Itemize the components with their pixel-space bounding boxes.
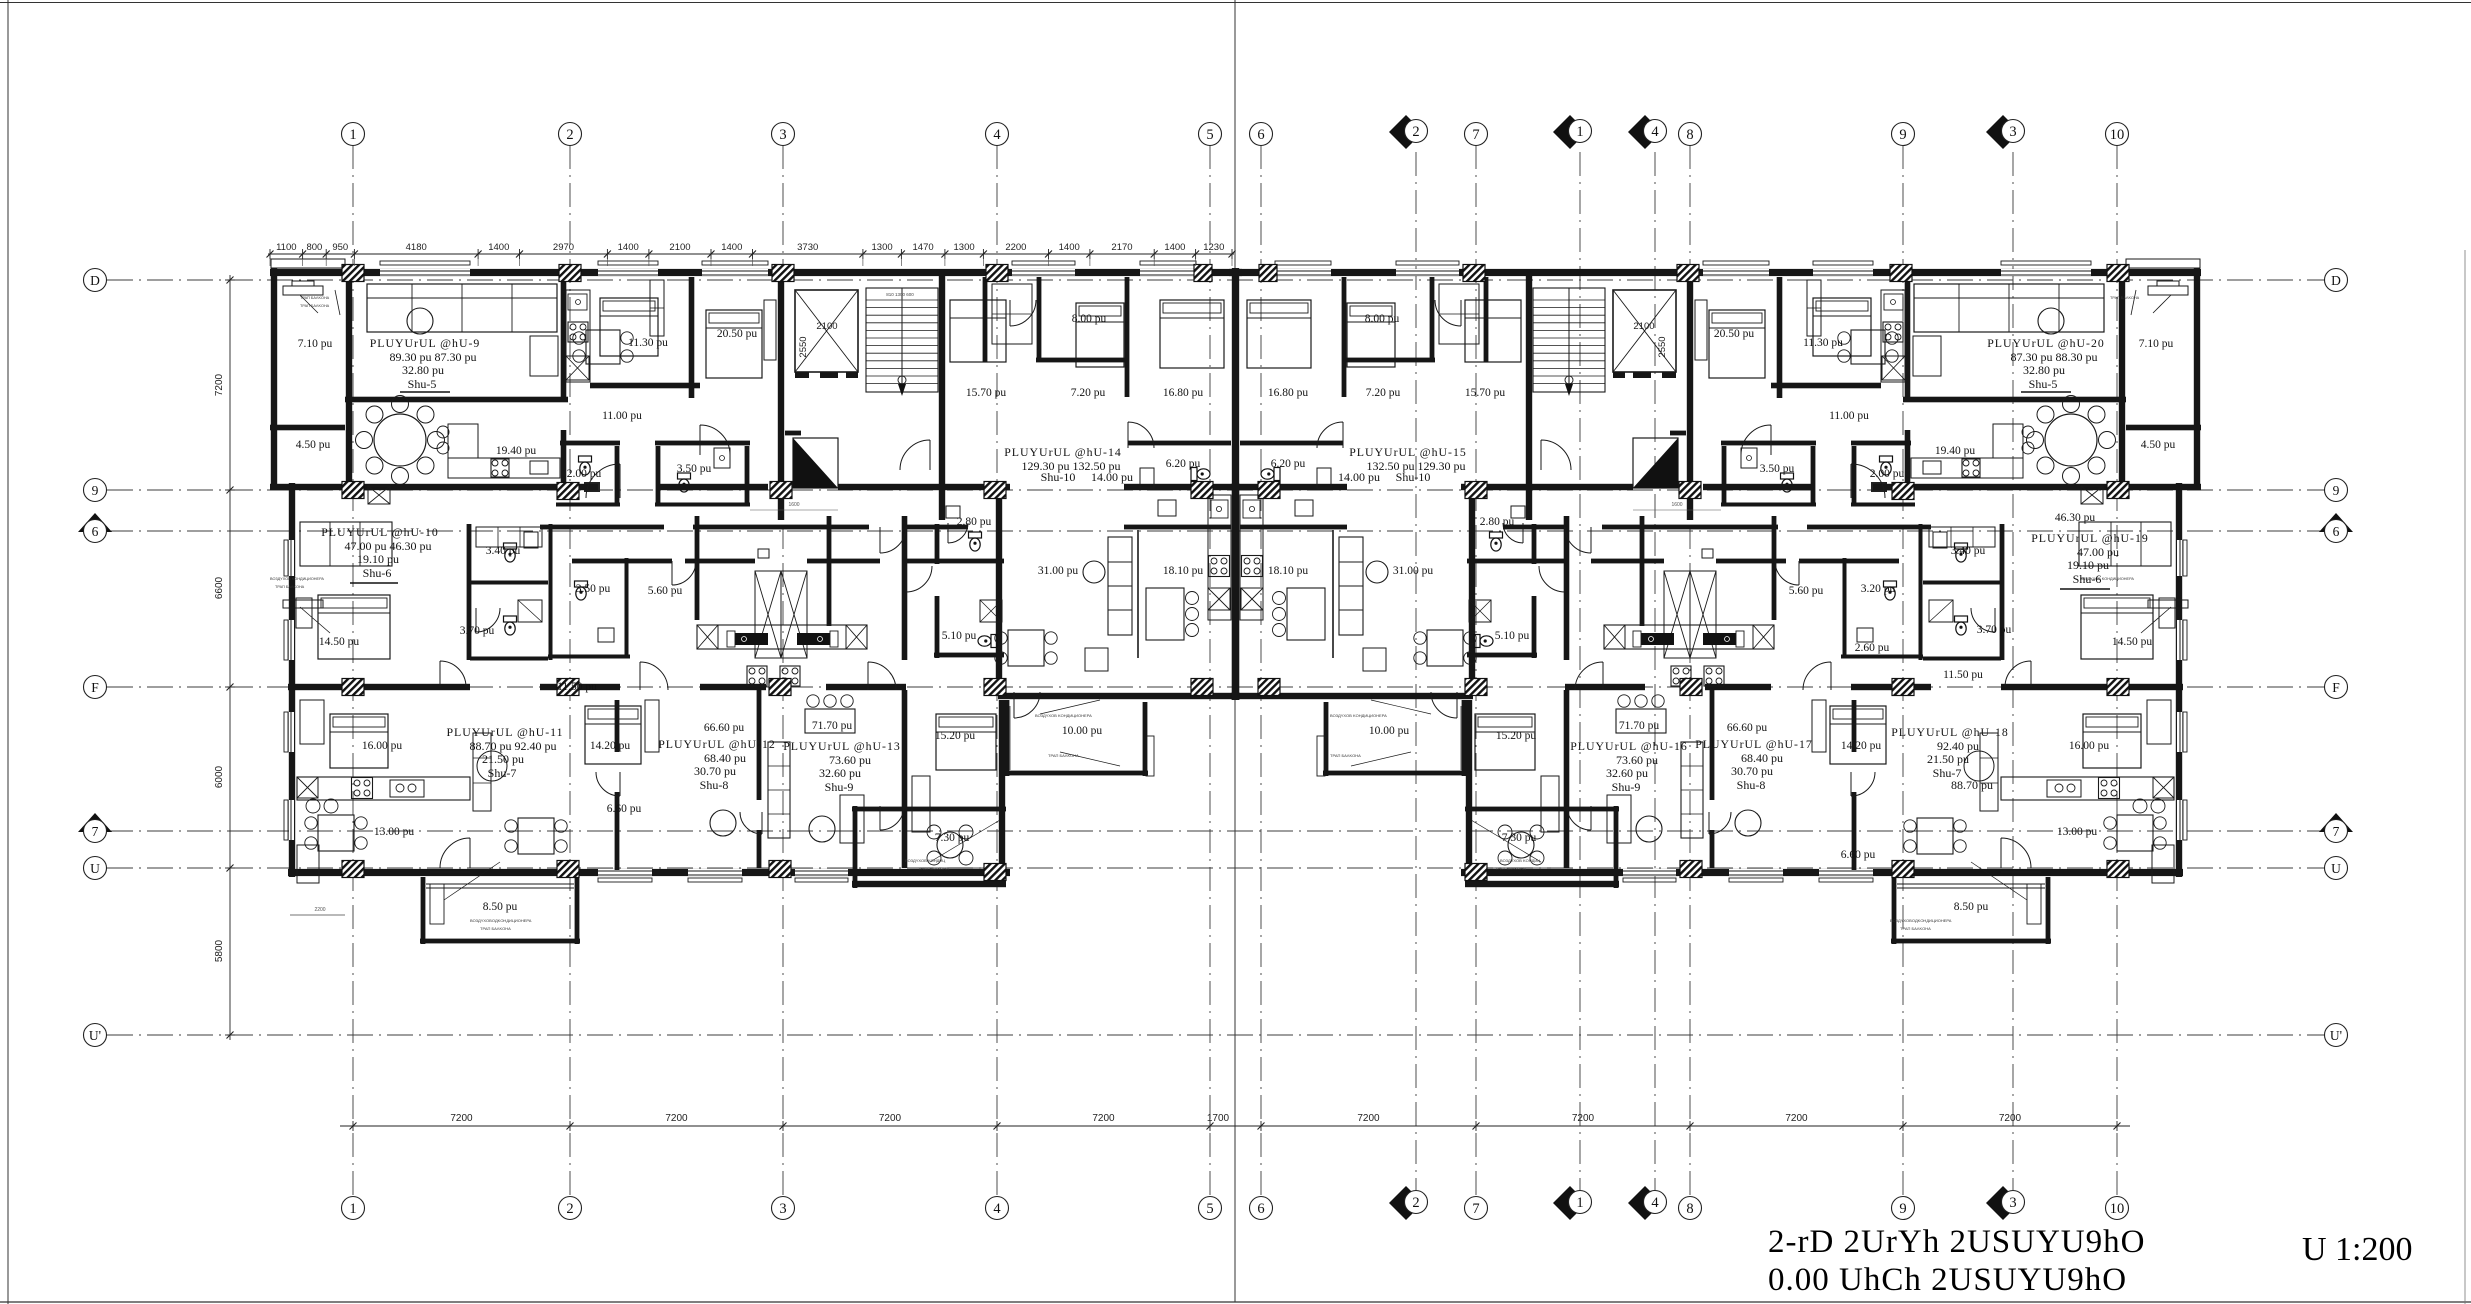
- svg-text:89.30 pu 87.30 pu: 89.30 pu 87.30 pu: [390, 350, 477, 364]
- svg-text:15.20 pu: 15.20 pu: [935, 730, 976, 742]
- svg-text:Shu-9: Shu-9: [825, 780, 854, 794]
- svg-text:BO3ДYXOB KOHДИЦИOHEPA: BO3ДYXOB KOHДИЦИOHEPA: [1330, 713, 1387, 718]
- svg-text:PLUYUrUL @hU-12: PLUYUrUL @hU-12: [658, 737, 776, 751]
- svg-text:11.50 pu: 11.50 pu: [557, 681, 597, 693]
- svg-text:7.30 pu: 7.30 pu: [1502, 832, 1537, 844]
- svg-text:47.00 pu 46.30 pu: 47.00 pu 46.30 pu: [345, 539, 432, 553]
- svg-text:7200: 7200: [1999, 1113, 2022, 1124]
- svg-text:2550: 2550: [798, 336, 809, 357]
- svg-text:Shu-7: Shu-7: [488, 766, 517, 780]
- svg-text:9: 9: [92, 483, 99, 498]
- svg-text:6.20 pu: 6.20 pu: [1166, 458, 1201, 470]
- svg-text:66.60 pu: 66.60 pu: [704, 722, 745, 734]
- svg-text:7: 7: [92, 824, 99, 839]
- svg-text:PLUYUrUL @hU-17: PLUYUrUL @hU-17: [1695, 737, 1813, 751]
- svg-text:1400: 1400: [1059, 242, 1080, 253]
- svg-text:11.00 pu: 11.00 pu: [1829, 410, 1869, 422]
- svg-text:BO3ДYXOB KOHДИЦИOHEPA: BO3ДYXOB KOHДИЦИOHEPA: [1035, 713, 1092, 718]
- svg-text:10.00 pu: 10.00 pu: [1062, 725, 1103, 737]
- svg-text:1: 1: [349, 1201, 356, 1217]
- svg-text:14.50 pu: 14.50 pu: [2112, 636, 2153, 648]
- svg-text:5: 5: [1206, 127, 1213, 143]
- svg-text:0.00 UhCh 2USUYU9hO: 0.00 UhCh 2USUYU9hO: [1768, 1262, 2127, 1298]
- svg-text:4180: 4180: [406, 242, 427, 253]
- svg-text:2.80 pu: 2.80 pu: [957, 516, 992, 528]
- svg-text:73.60 pu: 73.60 pu: [829, 753, 871, 767]
- svg-text:D: D: [2331, 273, 2341, 288]
- svg-text:1400: 1400: [721, 242, 742, 253]
- svg-text:1300: 1300: [954, 242, 975, 253]
- svg-text:4.50 pu: 4.50 pu: [2141, 439, 2176, 451]
- svg-text:TPAΠ БAΛKOHA: TPAΠ БAΛKOHA: [1495, 866, 1526, 871]
- svg-text:6.60 pu: 6.60 pu: [607, 803, 642, 815]
- svg-text:1: 1: [1576, 1195, 1583, 1211]
- svg-text:U: U: [2331, 861, 2341, 876]
- svg-text:7: 7: [1472, 127, 1479, 143]
- svg-text:BO3ДYXOBOДKOHДИЦИOHEPA: BO3ДYXOBOДKOHДИЦИOHEPA: [1890, 918, 1952, 923]
- svg-text:19.40 pu: 19.40 pu: [1935, 445, 1976, 457]
- svg-text:TPAΠ БAΛKOHA: TPAΠ БAΛKOHA: [300, 304, 330, 308]
- svg-text:7200: 7200: [1785, 1113, 1808, 1124]
- svg-text:U': U': [89, 1028, 101, 1043]
- svg-text:1: 1: [349, 127, 356, 143]
- svg-text:3.20 pu: 3.20 pu: [1861, 583, 1896, 595]
- svg-text:TPAΠ БAΛKOHA: TPAΠ БAΛKOHA: [918, 866, 949, 871]
- svg-text:2.00 pu: 2.00 pu: [567, 468, 602, 480]
- svg-text:16.80 pu: 16.80 pu: [1268, 387, 1309, 399]
- svg-text:32.80 pu: 32.80 pu: [2023, 363, 2065, 377]
- svg-text:2200: 2200: [1005, 242, 1026, 253]
- svg-text:5.10 pu: 5.10 pu: [942, 630, 977, 642]
- svg-text:3.50 pu: 3.50 pu: [677, 463, 712, 475]
- svg-text:87.30 pu 88.30 pu: 87.30 pu 88.30 pu: [2011, 350, 2098, 364]
- svg-text:5800: 5800: [214, 939, 225, 962]
- svg-text:PLUYUrUL @hU-18: PLUYUrUL @hU-18: [1891, 725, 2009, 739]
- svg-text:6.20 pu: 6.20 pu: [1271, 458, 1306, 470]
- svg-text:BO3ДYXOB KOHДИЦ: BO3ДYXOB KOHДИЦ: [1500, 858, 1540, 863]
- svg-text:7200: 7200: [1572, 1113, 1595, 1124]
- svg-text:4: 4: [1651, 1195, 1659, 1211]
- svg-text:3: 3: [779, 127, 786, 143]
- svg-text:TPAΠ БAΛKOHA: TPAΠ БAΛKOHA: [480, 926, 511, 931]
- svg-text:Shu-6: Shu-6: [2073, 572, 2102, 586]
- svg-text:Shu-6: Shu-6: [363, 566, 392, 580]
- svg-text:3.70 pu: 3.70 pu: [1977, 624, 2012, 636]
- svg-text:13.00 pu: 13.00 pu: [374, 826, 415, 838]
- svg-text:32.80 pu: 32.80 pu: [402, 363, 444, 377]
- svg-text:2550: 2550: [1657, 336, 1668, 357]
- svg-text:9: 9: [1899, 127, 1906, 143]
- svg-text:6: 6: [2333, 524, 2340, 539]
- svg-text:7200: 7200: [879, 1113, 902, 1124]
- svg-text:800: 800: [306, 242, 322, 253]
- svg-text:TPAΠ БAΛKOHA: TPAΠ БAΛKOHA: [1900, 926, 1931, 931]
- svg-text:14.00 pu: 14.00 pu: [1091, 470, 1133, 484]
- svg-text:5.60 pu: 5.60 pu: [1789, 585, 1824, 597]
- svg-text:7200: 7200: [1092, 1113, 1115, 1124]
- svg-text:3: 3: [2009, 124, 2016, 140]
- svg-text:Shu-5: Shu-5: [408, 377, 437, 391]
- svg-text:15.70 pu: 15.70 pu: [966, 387, 1007, 399]
- svg-text:21.50 pu: 21.50 pu: [482, 752, 524, 766]
- svg-text:11.30 pu: 11.30 pu: [1803, 337, 1843, 349]
- svg-text:3: 3: [2009, 1195, 2016, 1211]
- svg-text:PLUYUrUL @hU-20: PLUYUrUL @hU-20: [1987, 336, 2105, 350]
- svg-text:PLUYUrUL @hU-16: PLUYUrUL @hU-16: [1570, 739, 1688, 753]
- svg-text:1700: 1700: [1207, 1113, 1230, 1124]
- svg-text:5: 5: [1206, 1201, 1213, 1217]
- svg-text:Shu-10: Shu-10: [1041, 470, 1076, 484]
- svg-text:D: D: [90, 273, 100, 288]
- svg-text:950: 950: [332, 242, 348, 253]
- svg-text:13.00 pu: 13.00 pu: [2057, 826, 2098, 838]
- svg-text:68.40 pu: 68.40 pu: [704, 751, 746, 765]
- svg-text:2.80 pu: 2.80 pu: [1480, 516, 1515, 528]
- svg-text:810 1300 600: 810 1300 600: [886, 292, 914, 297]
- svg-text:16.00 pu: 16.00 pu: [362, 740, 403, 752]
- svg-text:1230: 1230: [1203, 242, 1224, 253]
- svg-text:TPAΠ БAΛKOHA: TPAΠ БAΛKOHA: [1048, 753, 1079, 758]
- svg-text:71.70 pu: 71.70 pu: [812, 720, 853, 732]
- svg-text:6.60 pu: 6.60 pu: [1841, 849, 1876, 861]
- svg-text:6600: 6600: [214, 576, 225, 599]
- svg-text:68.40 pu: 68.40 pu: [1741, 751, 1783, 765]
- svg-text:7200: 7200: [1357, 1113, 1380, 1124]
- svg-text:3.50 pu: 3.50 pu: [1760, 463, 1795, 475]
- svg-text:92.40 pu: 92.40 pu: [1937, 739, 1979, 753]
- svg-text:16.00 pu: 16.00 pu: [2069, 740, 2110, 752]
- svg-text:3730: 3730: [797, 242, 818, 253]
- svg-text:2: 2: [566, 1201, 573, 1217]
- svg-text:6: 6: [1257, 1201, 1264, 1217]
- svg-text:73.60 pu: 73.60 pu: [1616, 753, 1658, 767]
- svg-text:Shu-8: Shu-8: [1737, 778, 1766, 792]
- svg-text:TPAΠ БAΛKOHA: TPAΠ БAΛKOHA: [275, 585, 305, 589]
- svg-text:8.50 pu: 8.50 pu: [483, 901, 518, 913]
- svg-text:66.60 pu: 66.60 pu: [1727, 722, 1768, 734]
- svg-text:4.50 pu: 4.50 pu: [296, 439, 331, 451]
- svg-text:11.30 pu: 11.30 pu: [628, 337, 668, 349]
- svg-text:31.00 pu: 31.00 pu: [1393, 565, 1434, 577]
- svg-text:2100: 2100: [816, 321, 837, 332]
- svg-text:BO3ДYXOBOДKOHДИЦИOHEPA: BO3ДYXOBOДKOHДИЦИOHEPA: [470, 918, 532, 923]
- svg-text:PLUYUrUL @hU-10: PLUYUrUL @hU-10: [321, 525, 439, 539]
- svg-text:1400: 1400: [618, 242, 639, 253]
- svg-text:18.10 pu: 18.10 pu: [1268, 565, 1309, 577]
- svg-text:2100: 2100: [1633, 321, 1654, 332]
- svg-text:2170: 2170: [1111, 242, 1132, 253]
- svg-text:TPAΠ БAΛKOHA: TPAΠ БAΛKOHA: [1330, 753, 1361, 758]
- svg-text:88.70 pu 92.40 pu: 88.70 pu 92.40 pu: [470, 739, 557, 753]
- svg-text:2: 2: [1412, 1195, 1419, 1211]
- svg-text:1100: 1100: [276, 242, 296, 253]
- svg-text:88.70 pu: 88.70 pu: [1951, 778, 1993, 792]
- svg-text:U': U': [2330, 1028, 2342, 1043]
- svg-text:BO3ДYXOB KOHДИЦИOHEPA: BO3ДYXOB KOHДИЦИOHEPA: [270, 577, 324, 581]
- svg-text:46.30 pu: 46.30 pu: [2055, 512, 2096, 524]
- svg-text:30.70 pu: 30.70 pu: [694, 764, 736, 778]
- svg-text:3.40 pu: 3.40 pu: [486, 545, 521, 557]
- svg-text:2100: 2100: [669, 242, 690, 253]
- svg-text:1600: 1600: [788, 502, 799, 508]
- svg-text:6: 6: [1257, 127, 1264, 143]
- svg-text:4: 4: [993, 127, 1001, 143]
- svg-text:32.60 pu: 32.60 pu: [1606, 766, 1648, 780]
- svg-text:2-rD 2UrYh 2USUYU9hO: 2-rD 2UrYh 2USUYU9hO: [1768, 1224, 2145, 1260]
- svg-text:Shu-10: Shu-10: [1396, 470, 1431, 484]
- svg-text:4: 4: [993, 1201, 1001, 1217]
- svg-text:BO3ДYXOB KOHДИЦ: BO3ДYXOB KOHДИЦ: [905, 858, 945, 863]
- svg-text:14.00 pu: 14.00 pu: [1338, 470, 1380, 484]
- svg-text:5.10 pu: 5.10 pu: [1495, 630, 1530, 642]
- svg-text:7.30 pu: 7.30 pu: [935, 832, 970, 844]
- svg-text:10: 10: [2110, 127, 2125, 143]
- svg-text:1400: 1400: [1164, 242, 1185, 253]
- svg-text:7.20 pu: 7.20 pu: [1366, 387, 1401, 399]
- svg-text:11.50 pu: 11.50 pu: [1943, 669, 1983, 681]
- svg-text:19.10 pu: 19.10 pu: [2067, 558, 2109, 572]
- svg-text:15.70 pu: 15.70 pu: [1465, 387, 1506, 399]
- svg-text:1600: 1600: [1671, 502, 1682, 508]
- svg-text:14.50 pu: 14.50 pu: [319, 636, 360, 648]
- svg-text:7200: 7200: [665, 1113, 688, 1124]
- svg-text:U 1:200: U 1:200: [2302, 1231, 2413, 1268]
- svg-text:2970: 2970: [553, 242, 574, 253]
- svg-text:8: 8: [1686, 127, 1693, 143]
- svg-text:4: 4: [1651, 124, 1659, 140]
- svg-text:18.10 pu: 18.10 pu: [1163, 565, 1204, 577]
- svg-text:9: 9: [2333, 483, 2340, 498]
- svg-text:PLUYUrUL @hU-11: PLUYUrUL @hU-11: [446, 725, 563, 739]
- svg-text:PLUYUrUL @hU-19: PLUYUrUL @hU-19: [2031, 531, 2149, 545]
- svg-text:6000: 6000: [214, 765, 225, 788]
- svg-text:7200: 7200: [214, 373, 225, 396]
- svg-text:7.10 pu: 7.10 pu: [2139, 338, 2174, 350]
- svg-text:2: 2: [1412, 124, 1419, 140]
- svg-text:8.00 pu: 8.00 pu: [1365, 313, 1400, 325]
- svg-text:1400: 1400: [488, 242, 509, 253]
- svg-text:1: 1: [1576, 124, 1583, 140]
- svg-text:1470: 1470: [913, 242, 934, 253]
- svg-text:TPAΠ БAΛKOHA: TPAΠ БAΛKOHA: [300, 296, 330, 300]
- svg-text:7.20 pu: 7.20 pu: [1071, 387, 1106, 399]
- svg-text:F: F: [2332, 680, 2340, 695]
- svg-text:3.40 pu: 3.40 pu: [1951, 545, 1986, 557]
- svg-text:Shu-8: Shu-8: [700, 778, 729, 792]
- svg-text:2: 2: [566, 127, 573, 143]
- svg-text:PLUYUrUL @hU-15: PLUYUrUL @hU-15: [1349, 445, 1467, 459]
- svg-text:3: 3: [779, 1201, 786, 1217]
- svg-text:2.60 pu: 2.60 pu: [1855, 642, 1890, 654]
- svg-text:10.00 pu: 10.00 pu: [1369, 725, 1410, 737]
- svg-text:47.00 pu: 47.00 pu: [2077, 545, 2119, 559]
- svg-text:U: U: [90, 861, 100, 876]
- svg-text:1300: 1300: [872, 242, 893, 253]
- svg-text:15.20 pu: 15.20 pu: [1496, 730, 1537, 742]
- svg-text:71.70 pu: 71.70 pu: [1619, 720, 1660, 732]
- svg-text:7: 7: [1472, 1201, 1479, 1217]
- svg-text:3.50 pu: 3.50 pu: [576, 583, 611, 595]
- svg-text:2200: 2200: [314, 907, 325, 913]
- svg-text:8: 8: [1686, 1201, 1693, 1217]
- svg-text:21.50 pu: 21.50 pu: [1927, 752, 1969, 766]
- svg-text:TPAΠ БAΛKOHA: TPAΠ БAΛKOHA: [2110, 296, 2140, 300]
- svg-text:7: 7: [2333, 824, 2340, 839]
- svg-text:8.00 pu: 8.00 pu: [1072, 313, 1107, 325]
- svg-text:5.60 pu: 5.60 pu: [648, 585, 683, 597]
- svg-text:PLUYUrUL @hU-13: PLUYUrUL @hU-13: [783, 739, 901, 753]
- svg-text:2.00 pu: 2.00 pu: [1870, 468, 1905, 480]
- svg-text:9: 9: [1899, 1201, 1906, 1217]
- svg-text:20.50 pu: 20.50 pu: [717, 328, 758, 340]
- svg-text:10: 10: [2110, 1201, 2125, 1217]
- svg-text:32.60 pu: 32.60 pu: [819, 766, 861, 780]
- svg-text:16.80 pu: 16.80 pu: [1163, 387, 1204, 399]
- svg-text:Shu-5: Shu-5: [2029, 377, 2058, 391]
- svg-text:8.50 pu: 8.50 pu: [1954, 901, 1989, 913]
- svg-text:6: 6: [92, 524, 99, 539]
- svg-text:19.40 pu: 19.40 pu: [496, 445, 537, 457]
- svg-text:11.00 pu: 11.00 pu: [602, 410, 642, 422]
- svg-text:F: F: [91, 680, 99, 695]
- svg-text:31.00 pu: 31.00 pu: [1038, 565, 1079, 577]
- svg-text:30.70 pu: 30.70 pu: [1731, 764, 1773, 778]
- svg-text:3.70 pu: 3.70 pu: [460, 625, 495, 637]
- svg-text:PLUYUrUL @hU-14: PLUYUrUL @hU-14: [1004, 445, 1122, 459]
- svg-text:PLUYUrUL @hU-9: PLUYUrUL @hU-9: [370, 336, 481, 350]
- svg-text:7.10 pu: 7.10 pu: [298, 338, 333, 350]
- svg-text:7200: 7200: [450, 1113, 473, 1124]
- svg-text:19.10 pu: 19.10 pu: [357, 552, 399, 566]
- svg-text:Shu-9: Shu-9: [1612, 780, 1641, 794]
- svg-text:14.20 pu: 14.20 pu: [1841, 740, 1882, 752]
- svg-text:14.20 pu: 14.20 pu: [590, 740, 631, 752]
- svg-text:20.50 pu: 20.50 pu: [1714, 328, 1755, 340]
